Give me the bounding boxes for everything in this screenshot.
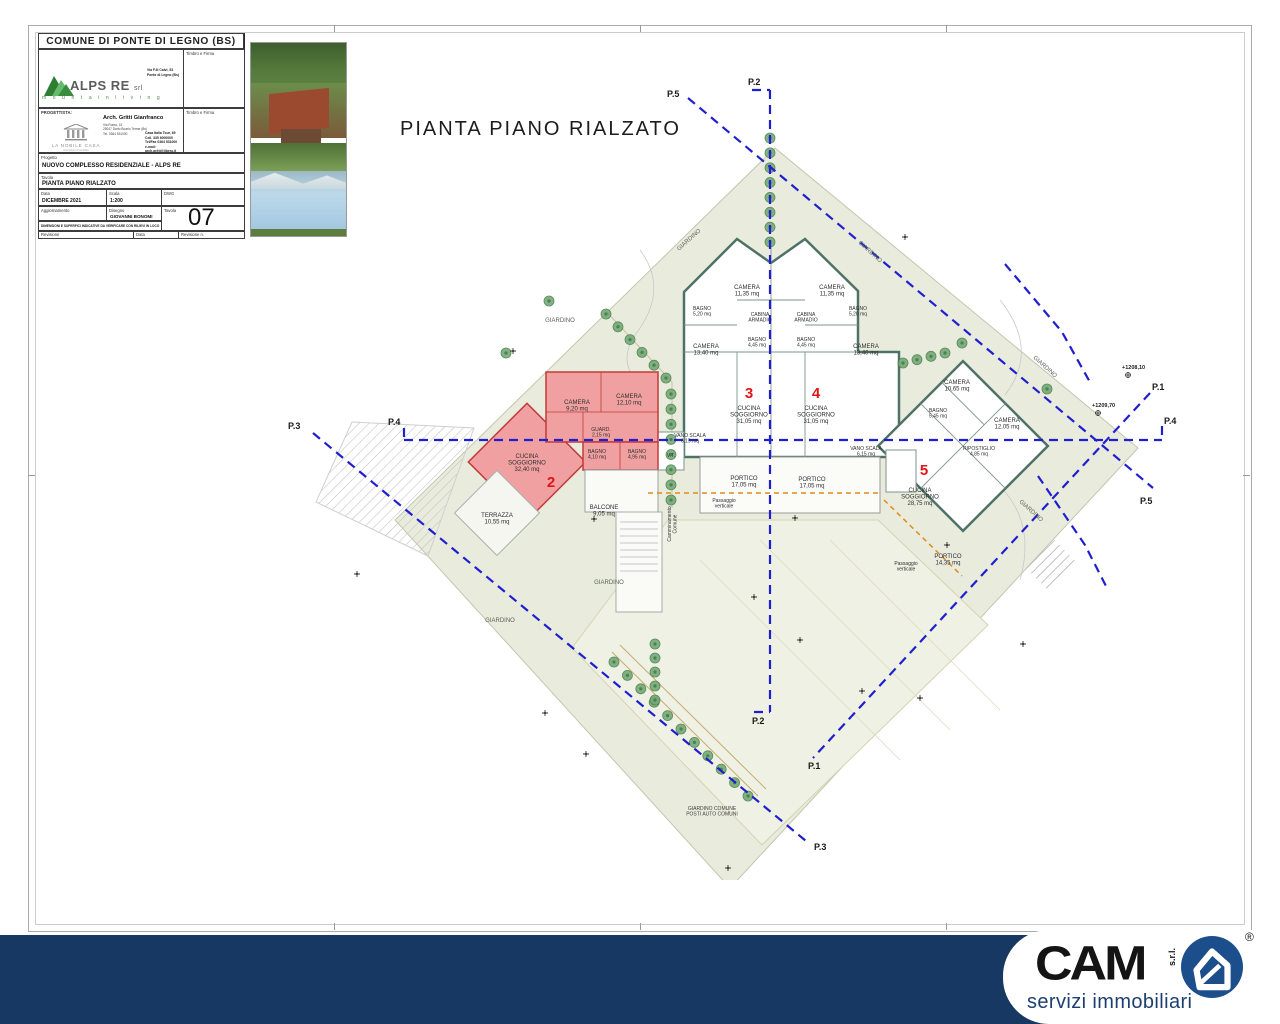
floor-plan-svg: P.2P.2P.4P.4P.5P.5P.1P.1P.3P.3CAMERA9,20… [285, 70, 1195, 880]
survey-marker-dot [753, 596, 755, 598]
tree-center [679, 727, 682, 730]
date-label: Data [41, 191, 50, 196]
note-text: DIMENSIONI E SUPERFICI INDICATIVE DA VER… [41, 224, 159, 228]
survey-marker-dot [919, 697, 921, 699]
section-label: P.5 [1140, 496, 1152, 506]
date-value: DICEMBRE 2021 [42, 198, 81, 204]
stair-block [886, 450, 916, 492]
scale-value: 1:200 [110, 198, 123, 204]
plan-label: PORTICO17,05 mq [798, 477, 826, 490]
tree-center [612, 660, 615, 663]
tree-center [669, 423, 672, 426]
plan-label: BAGNO4,45 mq [748, 337, 766, 349]
plan-label: GIARDINO [485, 618, 515, 624]
plan-label: GIARDINO [545, 318, 575, 324]
designer-cell: PROGETTISTA: LA NOBILE CASA costruzioni … [38, 108, 184, 153]
update-label: Aggiornamento [41, 208, 69, 213]
tree-center [616, 325, 619, 328]
tree-center [664, 376, 667, 379]
plan-label: CAMERA9,20 mq [564, 400, 590, 413]
sheet-number-label: Tavola [164, 208, 176, 213]
plan-label: BAGNO5,20 mq [693, 306, 711, 318]
frame-tick [946, 923, 947, 930]
frame-tick [946, 25, 947, 32]
scale-cell: Scala 1:200 [106, 189, 162, 206]
survey-marker-dot [356, 573, 358, 575]
designer-label: PROGETTISTA: [41, 110, 72, 115]
cam-logo-panel: CAM s.r.l. ® servizi immobiliari [1003, 930, 1280, 1024]
tree-center [669, 483, 672, 486]
survey-marker-dot [861, 690, 863, 692]
elevation-marker [1125, 372, 1131, 378]
revision-date-cell: Data [133, 231, 179, 239]
plan-label: CAMERA11,35 mq [819, 285, 845, 298]
stamp-label: Timbro e Firma [186, 51, 214, 56]
section-label: P.3 [288, 421, 300, 431]
tree-center [626, 674, 629, 677]
plan-label: CAMERA12,05 mq [994, 418, 1020, 431]
plan-label: CAMERA12,10 mq [616, 394, 642, 407]
tree-center [653, 670, 656, 673]
unit-number: 5 [920, 462, 928, 479]
plan-label: CAMERA13,40 mq [693, 344, 719, 357]
note-cell: DIMENSIONI E SUPERFICI INDICATIVE DA VER… [38, 221, 162, 231]
unit-number: 3 [745, 385, 753, 402]
unit-number: 2 [547, 474, 555, 491]
plan-label: CABINAARMADIO [794, 312, 817, 324]
cam-wordmark: CAM [1035, 936, 1144, 991]
tree-center [929, 355, 932, 358]
revision-label: Revisione [41, 232, 59, 237]
revision-number-label: Revisione n. [181, 232, 204, 237]
tree-center [639, 687, 642, 690]
survey-marker-dot [1022, 643, 1024, 645]
sheet-title-cell: Tavola PIANTA PIANO RIALZATO [38, 173, 245, 189]
company-tagline: m o u n t a i n l i v i n g [42, 95, 162, 101]
stamp-cell-1: Timbro e Firma [183, 49, 245, 108]
tree-center [669, 498, 672, 501]
sheet-number: 07 [188, 206, 215, 231]
stamp-label: Timbro e Firma [186, 110, 214, 115]
project-label: Progetto [41, 155, 57, 160]
plan-label: GIARDINO [594, 580, 624, 586]
frame-tick [1243, 475, 1250, 476]
tree-center [604, 312, 607, 315]
revision-date-label: Data [136, 232, 145, 237]
tree-center [669, 468, 672, 471]
section-label: P.1 [1152, 382, 1164, 392]
tree-center [960, 341, 963, 344]
tree-center [669, 408, 672, 411]
tree-center [943, 351, 946, 354]
tree-center [693, 741, 696, 744]
plan-label: BAGNO5,45 mq [929, 408, 947, 420]
frame-tick [334, 923, 335, 930]
sheet-number-cell: Tavola 07 [161, 206, 245, 231]
survey-marker-dot [799, 639, 801, 641]
section-label: P.4 [388, 417, 400, 427]
section-label: P.3 [814, 842, 826, 852]
plan-label: V.T. [667, 453, 675, 459]
plan-label: CABINAARMADIO [748, 312, 771, 324]
sheet-title-label: Tavola [41, 175, 53, 180]
drawn-by-label: Disegno [109, 208, 124, 213]
tree-center [706, 754, 709, 757]
section-label: P.2 [752, 716, 764, 726]
survey-marker-dot [904, 236, 906, 238]
tree-center [666, 714, 669, 717]
tree-center [653, 656, 656, 659]
date-cell: Data DICEMBRE 2021 [38, 189, 107, 206]
plan-label: CAMERA10,65 mq [944, 380, 970, 393]
elevation-label: +1209,70 [1092, 403, 1115, 409]
survey-marker-dot [593, 518, 595, 520]
plan-label: PORTICO17,05 mq [730, 476, 758, 489]
dwg-label: DWG [164, 191, 174, 196]
survey-marker-dot [946, 544, 948, 546]
studio-subtitle: costruzioni immobiliari [43, 149, 109, 152]
project-cell: Progetto NUOVO COMPLESSO RESIDENZIALE - … [38, 153, 245, 173]
update-cell: Aggiornamento [38, 206, 107, 221]
plan-label: BAGNO4,45 mq [797, 337, 815, 349]
section-label: P.4 [1164, 416, 1176, 426]
registered-mark: ® [1245, 930, 1254, 944]
frame-tick [334, 25, 335, 32]
plan-label: GUARD.2,15 mq [591, 427, 610, 439]
elevation-label: +1208,10 [1122, 365, 1145, 371]
company-name: ALPS RE srl [70, 78, 143, 93]
plan-label: Passaggioverticale [894, 561, 918, 573]
stamp-cell-2: Timbro e Firma [183, 108, 245, 153]
temple-icon [63, 124, 89, 142]
architect-name: Arch. Gritti Gianfranco [103, 115, 163, 121]
plan-label: BALCONE9,05 mq [590, 505, 619, 518]
titleblock-header: COMUNE DI PONTE DI LEGNO (BS) [38, 33, 244, 49]
frame-tick [640, 923, 641, 930]
section-label: P.2 [748, 77, 760, 87]
company-cell: ALPS RE srl m o u n t a i n l i v i n g … [38, 49, 184, 108]
plan-label: TERRAZZA10,55 mq [481, 513, 513, 526]
drawn-by-value: GIOVANNI BONOMI [110, 214, 153, 219]
common-walkway [616, 512, 662, 612]
cam-tagline: servizi immobiliari [1027, 991, 1192, 1014]
tree-center [652, 364, 655, 367]
tree-center [669, 438, 672, 441]
cam-house-icon [1181, 936, 1243, 998]
tree-center [504, 351, 507, 354]
tree-center [669, 392, 672, 395]
scale-label: Scala [109, 191, 119, 196]
sheet: COMUNE DI PONTE DI LEGNO (BS) ALPS RE sr… [0, 0, 1280, 1024]
survey-marker-dot [585, 753, 587, 755]
dwg-cell: DWG [161, 189, 245, 206]
tree-center [901, 361, 904, 364]
sheet-title-value: PIANTA PIANO RIALZATO [42, 181, 116, 187]
title-block: COMUNE DI PONTE DI LEGNO (BS) ALPS RE sr… [38, 33, 245, 239]
tree-center [653, 698, 656, 701]
survey-marker-dot [544, 712, 546, 714]
section-label: P.1 [808, 761, 820, 771]
project-value: NUOVO COMPLESSO RESIDENZIALE - ALPS RE [42, 163, 181, 169]
frame-tick [640, 25, 641, 32]
cam-srl-label: s.r.l. [1167, 948, 1177, 966]
plan-label: PORTICO14,35 mq [934, 554, 962, 567]
architect-address: Via Roma, 1525047 Darfo Boario Terme (Bs… [103, 123, 147, 136]
tree-center [547, 299, 550, 302]
tree-center [746, 794, 749, 797]
survey-marker-dot [512, 350, 514, 352]
drawn-by-cell: Disegno GIOVANNI BONOMI [106, 206, 162, 221]
plan-label: Passaggioverticale [712, 498, 736, 510]
survey-marker-dot [727, 867, 729, 869]
section-label: P.5 [667, 89, 679, 99]
revision-cell: Revisione [38, 231, 134, 239]
plan-label: BAGNO4,10 mq [588, 449, 606, 461]
la-nobile-casa-logo: LA NOBILE CASA costruzioni immobiliari [43, 123, 109, 151]
architect-contacts: Casa Italia Tour, 69Cell. 335 6000000Tel… [145, 131, 183, 153]
frame-tick [28, 475, 35, 476]
unit-number: 4 [812, 385, 821, 402]
studio-name: LA NOBILE CASA [43, 143, 109, 148]
tree-center [1045, 387, 1048, 390]
plan-label: BAGNO4,95 mq [628, 449, 646, 461]
alps-re-logo: ALPS RE srl m o u n t a i n l i v i n g [42, 72, 147, 106]
tree-center [653, 642, 656, 645]
revision-number-cell: Revisione n. [178, 231, 245, 239]
tree-center [640, 351, 643, 354]
tree-center [915, 358, 918, 361]
company-address: Via F.lli Calvi, 53Ponte di Legno (Bs) [147, 68, 183, 77]
tree-center [653, 684, 656, 687]
tree-center [628, 338, 631, 341]
plan-label: CAMERA11,35 mq [734, 285, 760, 298]
plan-label: GIARDINO COMUNEPOSTI AUTO COMUNI [686, 806, 738, 818]
plan-label: CAMERA13,40 mq [853, 344, 879, 357]
survey-marker-dot [794, 517, 796, 519]
plan-label: BAGNO5,20 mq [849, 306, 867, 318]
